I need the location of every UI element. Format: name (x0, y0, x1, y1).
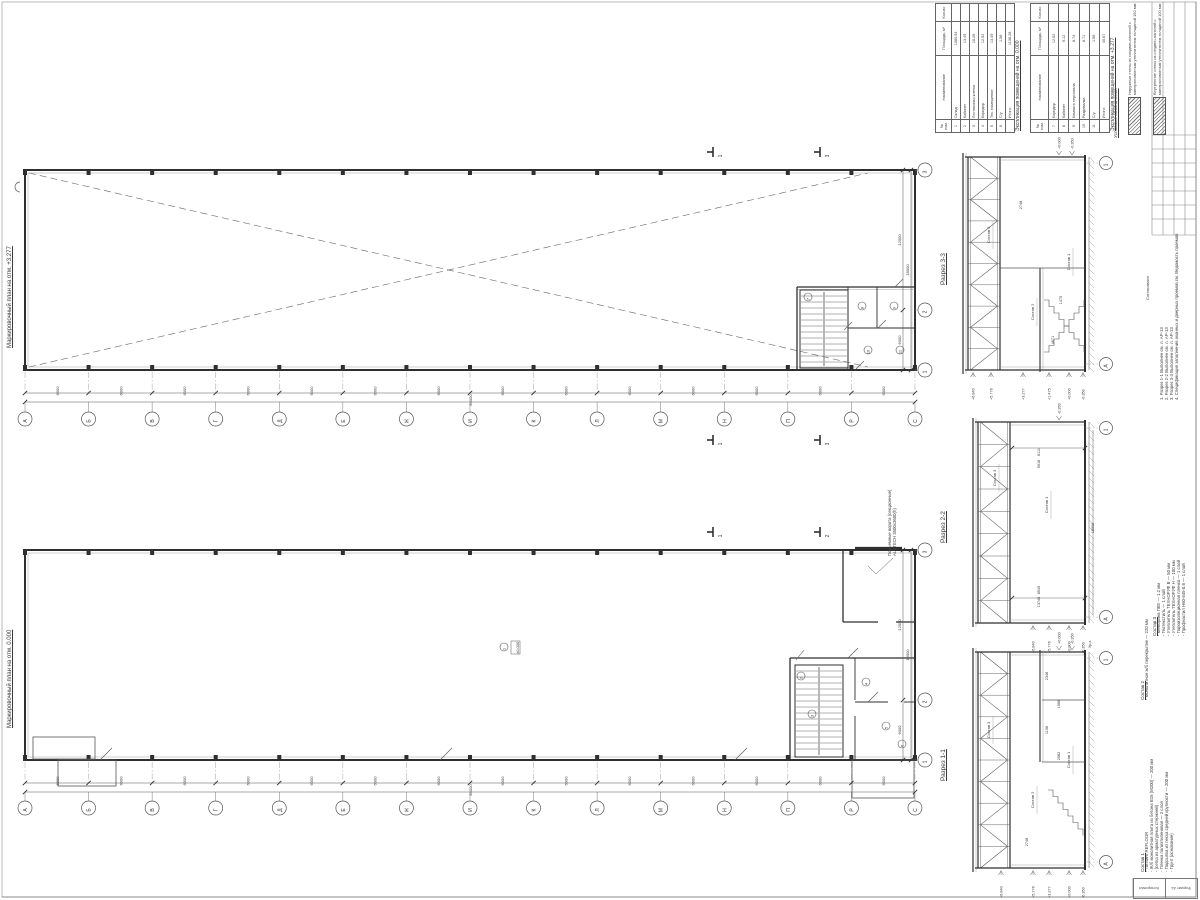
bay-dim: 6000 (563, 386, 568, 396)
room-number: 4 (864, 682, 869, 685)
composition-callout: Состав 2 (1030, 303, 1035, 320)
axis-letter: В (150, 419, 156, 423)
room-number: 1 (502, 647, 507, 650)
truss-diagonal (981, 601, 1008, 623)
column-mark (404, 755, 408, 761)
truss-diagonal (981, 556, 1008, 578)
axis-label: 1 (1104, 428, 1110, 431)
schedule-row: 10Раздевалка8.71 (1079, 4, 1089, 133)
section-dim: 9018 (1037, 460, 1041, 468)
ground-hatch (1089, 276, 1094, 281)
composition-item: - Профнастил Н60-845-0.8 — 1 слой (1182, 560, 1187, 636)
elevation-flag (1057, 646, 1062, 650)
axis-bubble (145, 801, 159, 815)
schedule-cell: 1080.94 (952, 22, 961, 56)
interior-wall-hatch-symbol (1153, 97, 1166, 135)
ground-hatch (1089, 618, 1094, 623)
axis-bubble (209, 801, 223, 815)
ground-hatch (1089, 513, 1094, 518)
axis-label: А (1104, 617, 1110, 621)
column-mark (722, 755, 726, 761)
schedule-cell: 8.74 (1069, 22, 1079, 56)
axis-letter: К (532, 808, 538, 811)
truss-diagonal (981, 534, 1008, 556)
ground-hatch (1089, 604, 1094, 609)
schedule-cell: 5 (988, 120, 997, 133)
column-mark (341, 169, 345, 175)
ground-hatch (1089, 429, 1094, 434)
ground-hatch (1089, 820, 1094, 825)
column-mark (277, 169, 281, 175)
column-mark (341, 365, 345, 371)
elevation-value: +0.000 (1058, 632, 1062, 644)
composition-callout: Состав 3 (986, 721, 991, 738)
ground-hatch (1089, 687, 1094, 692)
composition-item: - Монолитное ж/б перекрытие — 220 мм (1145, 619, 1150, 700)
ground-hatch (1089, 813, 1094, 818)
ground-hatch (1089, 841, 1094, 846)
axis-bubble (717, 801, 731, 815)
corner-stamp-label: Согласовано (1146, 276, 1150, 300)
schedule-cell: Лестничная клетка (970, 55, 979, 120)
schedule-cell: 4 (979, 120, 988, 133)
ground-hatch (1089, 583, 1094, 588)
schedule-cell (1079, 4, 1089, 22)
leader-line (876, 558, 893, 574)
schedule-header: Наименование (1031, 55, 1049, 120)
bay-dim: 6000 (118, 776, 123, 786)
axis-bubble (1100, 422, 1113, 435)
composition-callout: Состав 2 (1030, 791, 1035, 808)
ground-hatch (1089, 736, 1094, 741)
ground-hatch (1089, 464, 1094, 469)
column-mark (150, 755, 154, 761)
bay-dim: 6000 (627, 776, 632, 786)
ground-hatch (1089, 862, 1094, 867)
ground-hatch (1089, 743, 1094, 748)
composition-callout: Состав 1 (1066, 253, 1071, 270)
ground-hatch (1089, 367, 1094, 372)
schedule-cell (1069, 4, 1079, 22)
elevation-flag (1070, 151, 1075, 155)
room-number: 11 (898, 349, 903, 354)
ground-hatch (1089, 164, 1094, 169)
ground-hatch (1089, 576, 1094, 581)
plan-title-lower: Маркировочный план на отм. 0.000 (7, 630, 13, 728)
schedule-cell: 6 (996, 120, 1005, 133)
ground-hatch (1089, 360, 1094, 365)
section-dim: 2748 (1025, 838, 1029, 846)
elevation-value: +6.840 (1032, 641, 1036, 653)
room-schedule-ground: № пом.НаименованиеПлощадь, м²Кол-во1Скла… (935, 3, 1015, 133)
ground-hatch (1089, 555, 1094, 560)
axis-bubble (844, 412, 858, 426)
section-dim: 18000 (1091, 523, 1095, 534)
truss-diagonal (981, 674, 1008, 696)
schedule-row: 8Кабинет9.12 (1059, 4, 1069, 133)
schedule-total-row: Итого:1138.28 (1005, 4, 1014, 133)
column-mark (404, 365, 408, 371)
bay-dim: 6000 (309, 386, 314, 396)
bay-dim: 6000 (754, 386, 759, 396)
ground-hatch (1089, 241, 1094, 246)
bay-dim: 6000 (436, 386, 441, 396)
axis-label: 1 (1104, 658, 1110, 661)
schedule-cell: С/у (996, 55, 1005, 120)
ground-hatch (1089, 290, 1094, 295)
schedule-cell: Коридор (979, 55, 988, 120)
elevation-value: -0.350 (1071, 633, 1075, 644)
axis-bubble (918, 693, 932, 707)
elevation-value: +5.776 (1048, 641, 1052, 653)
axis-bubble (272, 412, 286, 426)
axis-bubble (908, 801, 922, 815)
axis-letter: Г (214, 808, 220, 811)
truss-diagonal (971, 157, 998, 178)
axis-label: 1 (1104, 163, 1110, 166)
section-dim: 2348 (1045, 672, 1049, 680)
elevation-value: +3.277 (1022, 388, 1026, 400)
axis-bubble (527, 801, 541, 815)
gate-note-line2: ALUTECH 3500х3600(h) (893, 490, 898, 556)
bay-dim: 6000 (245, 386, 250, 396)
cut-label: 3 (825, 442, 831, 445)
room-schedule-upper: № пом.НаименованиеПлощадь, м²Кол-во7Кори… (1030, 3, 1110, 133)
column-mark (595, 549, 599, 555)
column-mark (150, 549, 154, 555)
axis-bubble (918, 303, 932, 317)
ground-hatch (1089, 234, 1094, 239)
schedule-cell: С/у (1089, 55, 1099, 120)
schedule-cell: 13.49 (961, 22, 970, 56)
schedule-cell: 16.26 (970, 22, 979, 56)
section-dim: 1108 (1045, 726, 1049, 734)
plan-inner-wall-line (28, 173, 912, 367)
axis-letter: В (150, 808, 156, 812)
axis-number: 3 (923, 170, 929, 173)
column-mark (786, 755, 790, 761)
axis-number: 2 (923, 310, 929, 313)
schedule-cell: Комната персонала (1069, 55, 1079, 120)
ground-hatch (1089, 422, 1094, 427)
column-mark (23, 365, 27, 371)
bay-dim: 6000 (182, 386, 187, 396)
axis-bubble (336, 412, 350, 426)
ground-hatch (1089, 171, 1094, 176)
ground-hatch (1089, 659, 1094, 664)
ground-hatch (1089, 680, 1094, 685)
bay-dim: 6000 (881, 386, 886, 396)
column-mark (277, 755, 281, 761)
ground-hatch (1089, 806, 1094, 811)
truss-diagonal (981, 695, 1008, 717)
axis-number: 2 (923, 700, 929, 703)
bay-dim: 6000 (627, 386, 632, 396)
ground-hatch (1089, 548, 1094, 553)
schedule-cell (988, 4, 997, 22)
ground-hatch (1089, 541, 1094, 546)
bay-dim: 6000 (118, 386, 123, 396)
column-mark (214, 549, 218, 555)
schedule-cell: Коридор (1049, 55, 1059, 120)
schedule-row: 1Склад1080.94 (952, 4, 961, 133)
ground-hatch (1089, 694, 1094, 699)
elevation-value: +0.000 (1068, 388, 1072, 400)
axis-bubble (590, 412, 604, 426)
ground-level-label: Ур.з. (1089, 640, 1093, 648)
sheet-frame (2, 2, 1196, 897)
axis-bubble (527, 412, 541, 426)
ground-hatch (1089, 729, 1094, 734)
schedule-cell (979, 4, 988, 22)
column-mark (595, 755, 599, 761)
schedule-cell (952, 4, 961, 22)
schedule-cell: Тех. помещение (988, 55, 997, 120)
schedule-header: Кол-во (936, 4, 952, 22)
note-line: 4. Спецификация заполнения оконных и две… (1175, 234, 1180, 400)
ground-hatch (1089, 492, 1094, 497)
column-mark (532, 365, 536, 371)
ground-hatch (1089, 311, 1094, 316)
porch (58, 760, 116, 786)
ground-hatch (1089, 569, 1094, 574)
ground-hatch (1089, 297, 1094, 302)
composition-item: - Грунт (основание) (1170, 759, 1175, 872)
room-number: 7 (806, 297, 811, 300)
room-number: 9 (892, 306, 897, 309)
ground-hatch (1089, 192, 1094, 197)
ground-hatch (1089, 499, 1094, 504)
plan-outer-wall (25, 170, 915, 370)
axis-letter: А (23, 808, 29, 812)
axis-letter: Н (722, 419, 728, 423)
schedule-cell (1089, 4, 1099, 22)
schedule-cell: 10 (1079, 120, 1089, 133)
elevation-value: -0.350 (1082, 887, 1086, 898)
truss-diagonal (981, 738, 1008, 760)
ground-hatch (1089, 673, 1094, 678)
stair-steps (1048, 790, 1083, 836)
axis-letter: М (659, 419, 665, 423)
elevation-value: +6.840 (1000, 886, 1004, 898)
side-dim: 6000 (897, 725, 902, 735)
column-mark (214, 755, 218, 761)
composition-callout: Состав 3 (986, 226, 991, 243)
legend-item-label: Внутренние стены из сэндвич-панелей с ми… (1153, 3, 1162, 95)
axis-bubble (918, 163, 932, 177)
ground-hatch (1089, 436, 1094, 441)
column-mark (404, 169, 408, 175)
bay-dim: 6000 (500, 386, 505, 396)
axis-bubble (209, 412, 223, 426)
axis-letter: С (913, 808, 919, 812)
section-title-3-3: Разрез 3-3 (941, 253, 948, 285)
door-leaf (100, 748, 112, 760)
ground-hatch (1089, 339, 1094, 344)
schedule-total-value: 40.67 (1099, 22, 1109, 56)
ground-hatch (1089, 750, 1094, 755)
axis-bubble (272, 801, 286, 815)
truss-diagonal (971, 306, 998, 327)
truss-diagonal (981, 422, 1008, 444)
stamp-cell-right: Формат А1 (1166, 879, 1197, 898)
section-dim: 2748 (1019, 201, 1023, 209)
axis-bubble (590, 801, 604, 815)
cut-label: 1 (718, 534, 724, 537)
bay-dim: 6000 (182, 776, 187, 786)
section-title-1-1: Разрез 1-1 (941, 749, 948, 781)
schedule-row: 3Лестничная клетка16.26 (970, 4, 979, 133)
axis-letter: С (913, 419, 919, 423)
column-mark (214, 169, 218, 175)
column-mark (404, 549, 408, 555)
cut-label: 1 (718, 154, 724, 157)
door-swing (15, 182, 20, 192)
schedule-total-label: Итого: (1005, 55, 1014, 120)
elevation-value: +3.277 (1048, 886, 1052, 898)
truss-diagonal (971, 200, 998, 221)
axis-bubble (918, 543, 932, 557)
axis-letter: И (468, 808, 474, 812)
schedule-cell (961, 4, 970, 22)
elevation-value: -0.350 (1058, 403, 1062, 414)
column-mark (23, 549, 27, 555)
truss-diagonal (981, 846, 1008, 868)
column-mark (722, 549, 726, 555)
ground-hatch (1089, 220, 1094, 225)
ground-hatch (1089, 443, 1094, 448)
ground-hatch (1089, 785, 1094, 790)
column-mark (468, 365, 472, 371)
schedule-cell: Кабинет (1059, 55, 1069, 120)
column-mark (468, 549, 472, 555)
ground-hatch (1089, 855, 1094, 860)
schedule-cell: 9 (1069, 120, 1079, 133)
column-mark (150, 169, 154, 175)
elevation-value: +0.000 (1068, 886, 1072, 898)
floor-composition-list: Состав 1- Топпинг REFLOOR- Ж/б монолитна… (1140, 759, 1175, 872)
bay-dim: 6000 (500, 776, 505, 786)
schedule-cell: Кабинет (961, 55, 970, 120)
axis-letter: Н (722, 808, 728, 812)
ground-hatch (1089, 199, 1094, 204)
ground-hatch (1089, 590, 1094, 595)
composition-callout: Состав 1 (1044, 496, 1049, 513)
elevation-value: -0.350 (1082, 389, 1086, 400)
ground-hatch (1089, 799, 1094, 804)
schedule-cell (970, 4, 979, 22)
axis-bubble (918, 753, 932, 767)
schedule-row: 6С/у1.58 (996, 4, 1005, 133)
axis-number: 3 (923, 550, 929, 553)
side-dim: 6000 (897, 335, 902, 345)
schedule-row: 5Тех. помещение13.49 (988, 4, 997, 133)
column-mark (277, 549, 281, 555)
column-mark (87, 169, 91, 175)
column-mark (786, 365, 790, 371)
section-dim: 1568 (1057, 700, 1061, 708)
ground-hatch (1089, 457, 1094, 462)
column-mark (532, 549, 536, 555)
bay-dim: 6000 (245, 776, 250, 786)
bay-dim: 6000 (373, 386, 378, 396)
schedule-total-row: Итого:40.67 (1099, 4, 1109, 133)
room-number: 2 (799, 676, 804, 679)
section-dim: 8549 (1037, 586, 1041, 594)
schedule-cell: 9.12 (1059, 22, 1069, 56)
room-number: 10 (866, 349, 871, 354)
door-leaf (440, 748, 452, 760)
column-mark (468, 169, 472, 175)
axis-bubble (908, 412, 922, 426)
ground-hatch (1089, 597, 1094, 602)
elevation-value: -0.350 (1071, 138, 1075, 149)
side-total-dim: 18000 (905, 264, 910, 276)
axis-label: А (1104, 862, 1110, 866)
column-mark (468, 755, 472, 761)
door-leaf (868, 692, 878, 702)
vestibule (33, 737, 95, 759)
schedule-cell: 12.52 (979, 22, 988, 56)
bay-dim: 6000 (754, 776, 759, 786)
side-dim: 12000 (897, 234, 902, 246)
schedule-header: № пом. (1031, 120, 1049, 133)
axis-label: А (1104, 364, 1110, 368)
bay-dim: 6000 (373, 776, 378, 786)
truss-diagonal (981, 444, 1008, 466)
bay-dim: 6000 (881, 776, 886, 786)
ground-hatch (1089, 848, 1094, 853)
truss-diagonal (981, 511, 1008, 533)
drawing-sheet: 1789101123456А6000Б6000В6000Г6000Д6000Е6… (0, 0, 1200, 900)
truss-diagonal (981, 803, 1008, 825)
plan-title-upper: Маркировочный план на отм. +3.277 (7, 246, 13, 348)
axis-bubble (1100, 157, 1113, 170)
schedule-cell (1059, 4, 1069, 22)
truss-diagonal (981, 578, 1008, 600)
bay-dim: 6000 (690, 386, 695, 396)
schedule-cell: 13.49 (988, 22, 997, 56)
axis-bubble (781, 412, 795, 426)
axis-bubble (82, 412, 96, 426)
hall-level-mark: ±0.000 (516, 642, 520, 654)
schedule-cell: 11 (1089, 120, 1099, 133)
bay-dim: 6000 (563, 776, 568, 786)
axis-letter: Ж (404, 418, 410, 423)
axis-bubble (918, 363, 932, 377)
schedule-cell: 12.52 (1049, 22, 1059, 56)
axis-bubble (145, 412, 159, 426)
axis-letter: П (786, 808, 792, 812)
total-dim: 84000 (468, 394, 473, 406)
column-mark (23, 755, 27, 761)
ground-hatch (1089, 471, 1094, 476)
axis-bubble (463, 412, 477, 426)
column-mark (532, 169, 536, 175)
ground-hatch (1089, 611, 1094, 616)
ground-hatch (1089, 206, 1094, 211)
elevation-value: +5.776 (990, 388, 994, 400)
column-mark (595, 365, 599, 371)
ground-hatch (1089, 325, 1094, 330)
schedule-cell: Склад (952, 55, 961, 120)
schedule-cell (996, 4, 1005, 22)
truss-diagonal (981, 825, 1008, 847)
ground-hatch (1089, 450, 1094, 455)
general-notes: 1. Разрез 1-1 Выполнен см. л. АР-132. Ра… (1160, 234, 1180, 400)
axis-letter: П (786, 419, 792, 423)
axis-letter: Д (277, 419, 283, 423)
